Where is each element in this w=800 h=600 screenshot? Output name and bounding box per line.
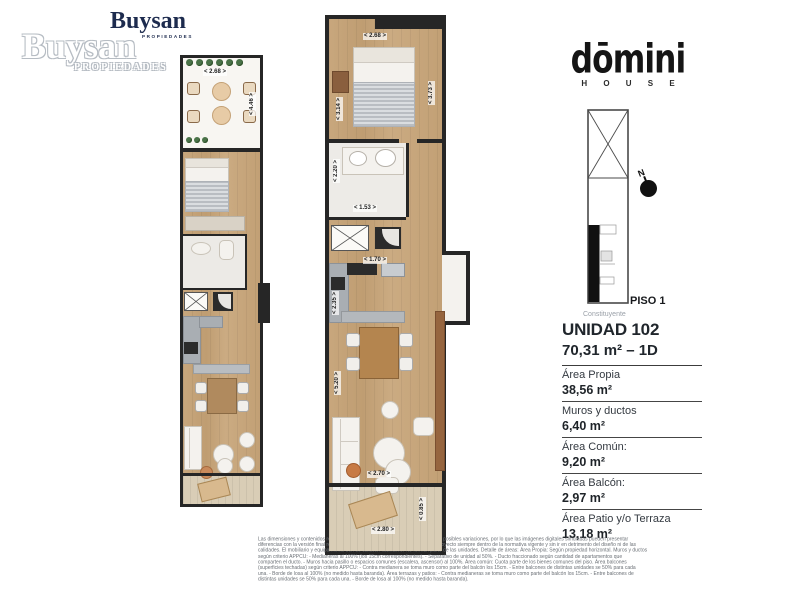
wall-notch	[258, 283, 270, 323]
area-label: Área Balcón:	[562, 477, 702, 489]
area-label: Área Patio y/o Terraza	[562, 513, 702, 525]
area-value: 9,20 m²	[562, 455, 702, 469]
dining-chair	[399, 357, 413, 371]
area-row: Área Común: 9,20 m²	[562, 438, 702, 474]
planter	[435, 311, 445, 471]
dim-label: < 2.70 >	[367, 471, 391, 478]
sink	[349, 151, 367, 166]
closet	[331, 225, 369, 251]
dim-label: < 4.46 >	[249, 92, 256, 116]
dim-label: < 5.20 >	[334, 371, 341, 395]
disclaimer-line: distintas unidades se 50% para cada una.…	[258, 576, 658, 582]
area-value: 38,56 m²	[562, 383, 702, 397]
area-label: Área Propia	[562, 369, 702, 381]
wardrobe	[185, 216, 245, 231]
side-patio	[442, 255, 466, 321]
floor-plan-small: < 2.68 > < 4.46 >	[180, 55, 263, 507]
plant-icon	[186, 137, 208, 143]
unit-info-panel: UNIDAD 102 70,31 m² – 1D Área Propia 38,…	[562, 320, 702, 545]
shower	[213, 292, 233, 311]
dim-label: < 2.80 >	[371, 527, 395, 534]
buysan-watermark: Buysan PROPIEDADES	[22, 28, 168, 73]
dim-label: < 0.85 >	[419, 497, 426, 521]
legal-disclaimer: Las dimensiones y contenidos responden a…	[258, 536, 658, 582]
bed	[353, 47, 415, 127]
bed	[185, 158, 229, 212]
patio-chair	[187, 110, 200, 123]
dim-label: < 3.14 >	[336, 97, 343, 121]
armchair	[239, 432, 255, 448]
domini-logo-text: dōmini	[564, 36, 693, 83]
dim-label: < 2.68 >	[363, 33, 387, 40]
dining-chair	[195, 400, 207, 412]
patio-chair	[187, 82, 200, 95]
area-row: Muros y ductos 6,40 m²	[562, 402, 702, 438]
kitchen-counter	[199, 316, 223, 328]
domini-logo: dōmini H O U S E	[558, 36, 698, 88]
bathroom-small	[183, 234, 245, 290]
patio-table	[212, 106, 231, 125]
dim-label: < 2.35 >	[332, 291, 339, 315]
area-label: Muros y ductos	[562, 405, 702, 417]
dining-chair	[195, 382, 207, 394]
watermark-text: Buysan	[22, 28, 168, 64]
shower	[375, 227, 401, 249]
dim-label: < 2.20 >	[333, 159, 340, 183]
unit-subtitle: 70,31 m² – 1D	[562, 342, 702, 366]
watermark-subtext: PROPIEDADES	[74, 62, 168, 73]
dining-chair	[237, 400, 249, 412]
area-label: Área Común:	[562, 441, 702, 453]
kitchen-appliance	[347, 263, 377, 275]
armchair	[413, 417, 434, 436]
stove	[184, 342, 198, 354]
dim-label: < 3.73 >	[428, 81, 435, 105]
dim-label: < 1.70 >	[363, 257, 387, 264]
dining-chair	[346, 357, 360, 371]
sofa	[332, 417, 360, 491]
dining-chair	[346, 333, 360, 347]
kitchen-counter	[381, 263, 405, 277]
toilet	[375, 149, 396, 167]
sofa	[184, 426, 202, 470]
floor-plan-large: < 2.68 > < 3.14 > < 3.73 > < 2.20 > < 1.…	[325, 15, 446, 555]
closet	[184, 292, 208, 311]
pouf	[346, 463, 361, 478]
sideboard	[341, 311, 405, 323]
floor-label: PISO 1	[630, 295, 665, 307]
toilet	[219, 240, 234, 260]
area-row: Área Propia 38,56 m²	[562, 366, 702, 402]
unit-title: UNIDAD 102	[562, 320, 702, 340]
area-value: 2,97 m²	[562, 491, 702, 505]
dim-label: < 2.68 >	[203, 69, 227, 76]
sink	[191, 242, 211, 255]
dim-label: < 1.53 >	[353, 205, 377, 212]
patio-table	[212, 82, 231, 101]
plant-icon	[186, 59, 243, 66]
nightstand	[332, 71, 349, 93]
stove	[331, 277, 345, 290]
site-plan-diagram	[587, 109, 629, 304]
dining-chair	[237, 382, 249, 394]
area-value: 6,40 m²	[562, 419, 702, 433]
dining-table	[359, 327, 399, 379]
disclaimer-line: calidades. El mobiliario y equipamiento …	[258, 548, 658, 554]
armchair	[239, 456, 255, 472]
dining-table	[207, 378, 237, 414]
sideboard	[193, 364, 250, 374]
area-row: Área Balcón: 2,97 m²	[562, 474, 702, 510]
dining-chair	[399, 333, 413, 347]
coffee-table	[217, 458, 233, 474]
street-label: Constituyente	[583, 311, 626, 318]
compass-icon	[640, 180, 657, 197]
side-table	[381, 401, 399, 419]
